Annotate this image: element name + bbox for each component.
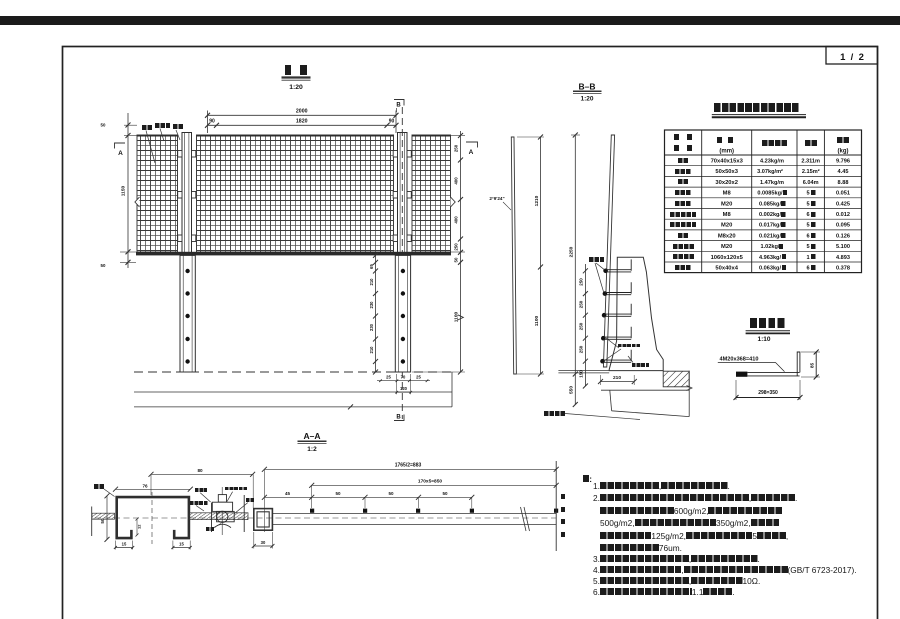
svg-text:M20: M20: [721, 223, 732, 229]
svg-text:1.47kg/m: 1.47kg/m: [760, 180, 784, 186]
svg-text:25: 25: [416, 374, 421, 379]
svg-text:45: 45: [285, 491, 291, 496]
svg-text:76: 76: [142, 483, 148, 488]
svg-text:0.021kg/: 0.021kg/: [759, 233, 782, 239]
svg-text:50: 50: [101, 123, 106, 128]
svg-text:2.311m: 2.311m: [801, 159, 820, 165]
svg-text:90: 90: [389, 119, 395, 125]
svg-text:0.051: 0.051: [836, 191, 850, 197]
svg-text:5: 5: [806, 201, 809, 207]
svg-text:0.012: 0.012: [836, 212, 850, 218]
svg-text:1210: 1210: [534, 195, 540, 206]
svg-text:30x20x2: 30x20x2: [715, 180, 738, 186]
svg-text:70: 70: [401, 374, 406, 379]
svg-text:150: 150: [579, 370, 584, 378]
svg-text:15: 15: [122, 541, 127, 546]
svg-text:85: 85: [810, 363, 816, 369]
svg-text:0.063kg/: 0.063kg/: [759, 266, 782, 272]
svg-text:0.425: 0.425: [836, 201, 850, 207]
svg-text:50x40x4: 50x40x4: [715, 266, 738, 272]
svg-text:0.017kg/: 0.017kg/: [759, 223, 782, 229]
svg-text:A: A: [469, 149, 474, 156]
svg-text:250: 250: [579, 345, 584, 353]
svg-text:65: 65: [369, 264, 374, 269]
svg-text:50: 50: [335, 491, 341, 496]
svg-text:4.893: 4.893: [836, 255, 850, 261]
svg-text:(kg): (kg): [838, 149, 849, 155]
svg-text:4.45: 4.45: [838, 169, 849, 175]
svg-text:12: 12: [137, 524, 142, 529]
svg-text:4.23kg/m: 4.23kg/m: [760, 159, 784, 165]
svg-text:5: 5: [806, 244, 809, 250]
svg-text:B: B: [396, 415, 401, 421]
svg-text:50: 50: [388, 491, 394, 496]
svg-text:250: 250: [579, 278, 584, 286]
svg-text:1: 1: [806, 255, 809, 261]
svg-text:15: 15: [179, 541, 184, 546]
svg-text:250: 250: [454, 243, 459, 251]
svg-text:1:2: 1:2: [307, 446, 317, 453]
svg-text:2250: 2250: [569, 246, 575, 257]
svg-text:1.02kg/: 1.02kg/: [761, 244, 780, 250]
svg-text:1820: 1820: [296, 119, 308, 125]
svg-text:6: 6: [806, 233, 809, 239]
svg-text:2°9'24": 2°9'24": [489, 196, 504, 201]
svg-text:B: B: [396, 103, 401, 109]
svg-text:1100: 1100: [534, 315, 540, 326]
svg-text:210: 210: [369, 278, 374, 286]
svg-text:250: 250: [579, 322, 584, 330]
svg-text:50: 50: [101, 263, 106, 268]
svg-text:(mm): (mm): [719, 149, 734, 155]
svg-text:5.100: 5.100: [836, 244, 850, 250]
svg-text:400: 400: [454, 177, 459, 185]
svg-text:5: 5: [806, 191, 809, 197]
svg-text:M20: M20: [721, 244, 732, 250]
svg-text:80: 80: [197, 468, 203, 473]
svg-text:0.126: 0.126: [836, 233, 850, 239]
svg-text:1:10: 1:10: [757, 336, 770, 343]
svg-text:120: 120: [400, 386, 408, 391]
svg-text:0.002kg/: 0.002kg/: [759, 212, 782, 218]
svg-text:9.796: 9.796: [836, 159, 850, 165]
svg-text:70x40x15x3: 70x40x15x3: [711, 159, 744, 165]
svg-text:1100: 1100: [454, 311, 460, 322]
svg-text:50: 50: [454, 257, 459, 262]
svg-text:210: 210: [369, 346, 374, 354]
svg-text:250: 250: [579, 300, 584, 308]
svg-text:M8x20: M8x20: [718, 233, 736, 239]
svg-text:210: 210: [613, 375, 621, 381]
svg-text:1 / 2: 1 / 2: [840, 52, 864, 63]
svg-text:230: 230: [369, 323, 374, 331]
svg-text:6: 6: [806, 266, 809, 272]
svg-text:4M20x368=410: 4M20x368=410: [719, 357, 758, 363]
svg-text:400: 400: [454, 216, 459, 224]
svg-text:1765/2=883: 1765/2=883: [395, 463, 422, 469]
svg-text:1:20: 1:20: [289, 84, 303, 91]
svg-text:0.378: 0.378: [836, 266, 850, 272]
svg-text:1:20: 1:20: [580, 96, 593, 103]
svg-text:2000: 2000: [296, 109, 308, 115]
svg-text:B–B: B–B: [578, 82, 595, 92]
svg-text:0.0085kg/: 0.0085kg/: [757, 191, 783, 197]
svg-text:A: A: [118, 150, 123, 157]
svg-text:4.963kg/: 4.963kg/: [759, 255, 782, 261]
svg-text:M8: M8: [723, 191, 732, 197]
svg-text:250: 250: [454, 144, 459, 152]
svg-text:5: 5: [806, 223, 809, 229]
svg-text:1060x120x5: 1060x120x5: [711, 255, 744, 261]
svg-text:25: 25: [386, 374, 391, 379]
svg-text:170x5=850: 170x5=850: [418, 479, 442, 485]
svg-text:M20: M20: [721, 201, 732, 207]
svg-text:2.15m²: 2.15m²: [802, 168, 820, 175]
svg-text:6.04m: 6.04m: [803, 180, 819, 186]
svg-text:M8: M8: [723, 212, 732, 218]
svg-text:0.095: 0.095: [836, 223, 850, 229]
svg-text:90: 90: [209, 119, 215, 125]
svg-text:230: 230: [369, 301, 374, 309]
svg-text:50x50x3: 50x50x3: [715, 169, 738, 175]
svg-text:298=350: 298=350: [758, 390, 778, 396]
svg-text:30: 30: [261, 540, 266, 545]
svg-text:1150: 1150: [121, 185, 127, 196]
svg-text:3.07kg/m²: 3.07kg/m²: [757, 168, 783, 175]
svg-text:A–A: A–A: [303, 431, 320, 441]
svg-text:8.88: 8.88: [838, 180, 849, 186]
svg-text:550: 550: [569, 386, 575, 394]
svg-text:0.085kg/: 0.085kg/: [759, 201, 782, 207]
svg-text:6: 6: [806, 212, 809, 218]
svg-text:50: 50: [442, 491, 448, 496]
